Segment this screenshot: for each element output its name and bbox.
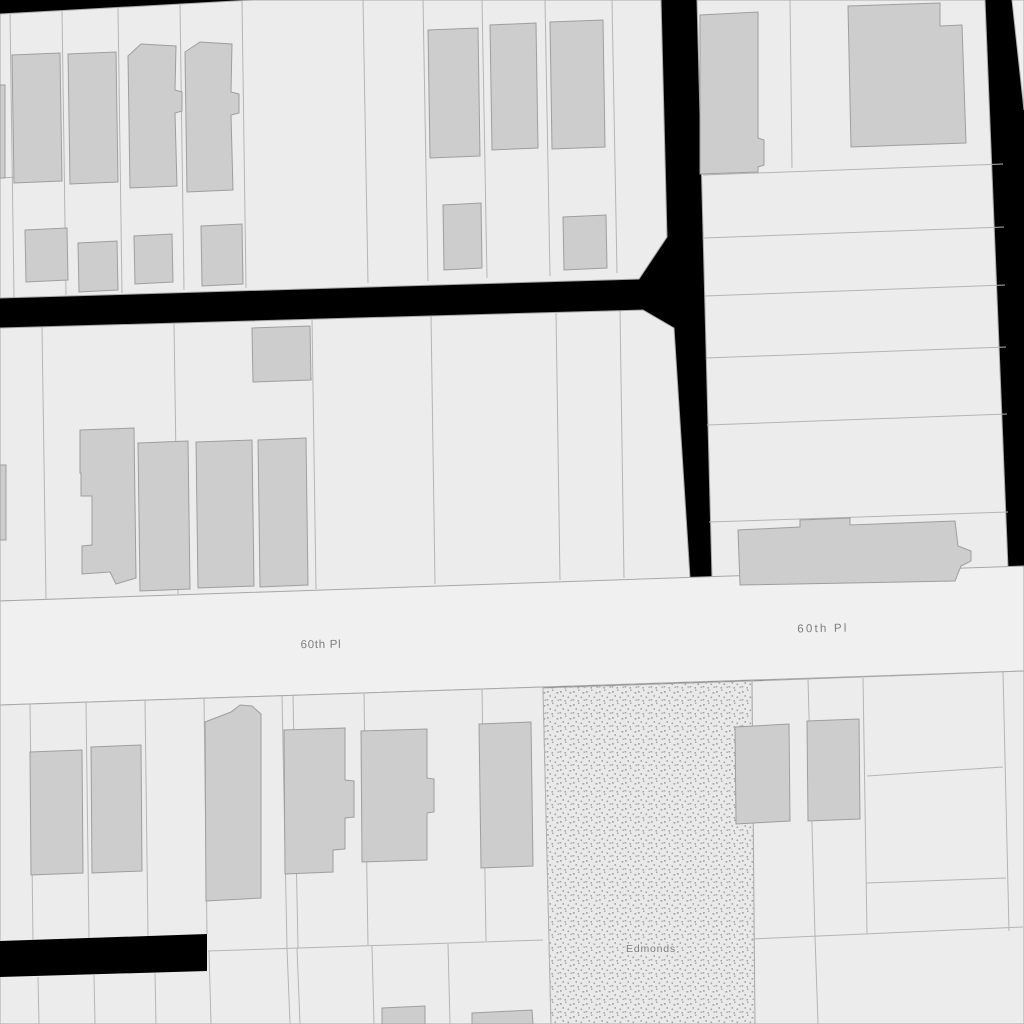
street-label-60th-pl-east: 60th Pl (797, 623, 848, 636)
edmonds-tract-parcel[interactable] (543, 681, 756, 1024)
map-viewport[interactable]: 60th Pl 60th Pl Edmonds (0, 0, 1024, 1024)
parcel-block-southeast[interactable] (752, 671, 1024, 1024)
area-label-edmonds: Edmonds (626, 943, 676, 955)
street-label-60th-pl-west: 60th Pl (301, 639, 342, 651)
alley-gap (0, 934, 207, 977)
map-canvas[interactable]: 60th Pl 60th Pl Edmonds (0, 0, 1024, 1024)
